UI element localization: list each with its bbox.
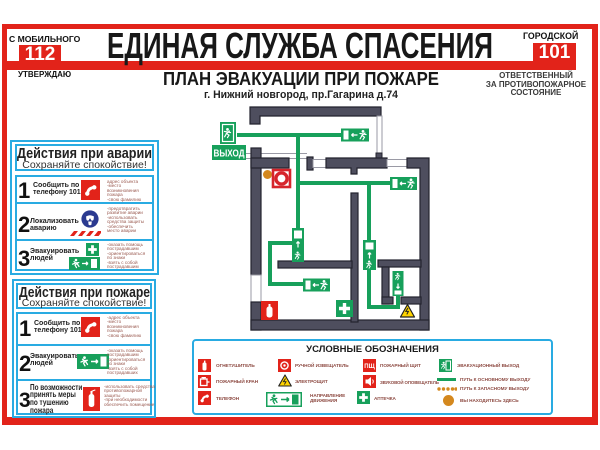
svg-text:ВЫХОД: ВЫХОД <box>214 148 245 160</box>
svg-text:ПЩ: ПЩ <box>364 364 375 370</box>
